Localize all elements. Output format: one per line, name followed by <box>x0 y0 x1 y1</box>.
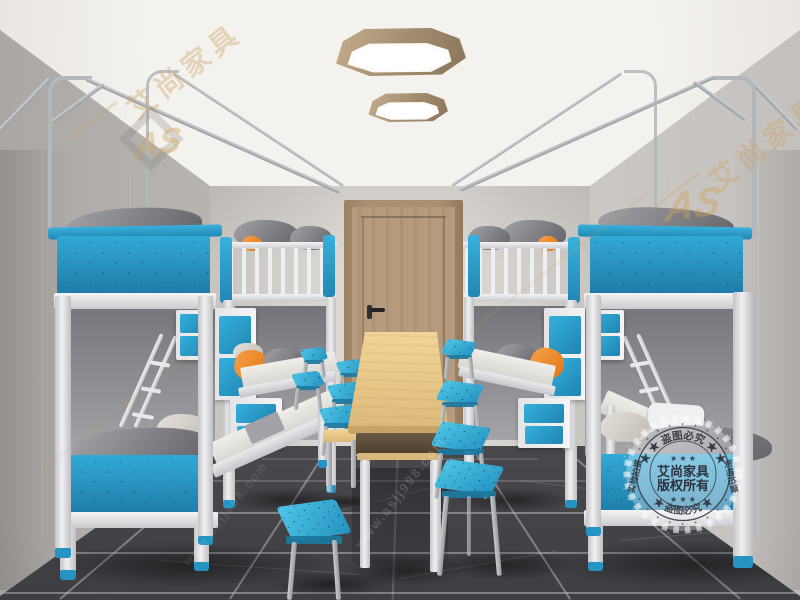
dorm-room-render: 艾尚家具 AS 艾尚家具 AS www.asjj998.com www.asjj… <box>0 0 800 600</box>
stool-side <box>442 402 478 407</box>
stamp-stars-top: ★ ★ ★ <box>670 454 696 463</box>
stool-blue <box>440 462 498 492</box>
stool-blue <box>444 340 474 356</box>
stool-top <box>276 499 352 541</box>
bed-post <box>198 296 213 538</box>
upper-end-panel-blue <box>590 236 743 296</box>
upper-frame-rail <box>584 293 746 309</box>
upper-guardrail-bottom <box>227 294 337 301</box>
upper-frame-rail <box>54 293 216 309</box>
lamp-light-face <box>374 102 440 121</box>
upper-end-panel-blue <box>57 236 210 296</box>
bed-foot-cap <box>194 562 209 571</box>
bench-leg <box>327 442 332 492</box>
stamp-center-line1: 艾尚家具 <box>657 464 709 479</box>
upper-guardrail-slats <box>229 248 335 295</box>
post-blue-cap <box>468 235 480 297</box>
door-handle <box>370 308 385 312</box>
post-blue-cap <box>220 237 232 303</box>
bed-foot-cap <box>586 527 601 536</box>
door-groove-top <box>361 216 446 218</box>
bed-foot-cap <box>60 570 76 580</box>
bed-post <box>55 296 71 550</box>
shadow-under-stools-right <box>425 548 585 582</box>
table-leg <box>360 460 370 568</box>
lamp-light-face <box>345 42 452 73</box>
lower-end-panel-blue <box>62 455 212 517</box>
floor-grout-line <box>0 592 800 594</box>
stool-leg <box>467 496 471 556</box>
copyright-stamp: ★ ★ 盗图必究 ★ ★ ★ 盗图必究 ★ 实物拍摄 实物拍摄 ★ ★ ★ 艾尚… <box>623 414 743 534</box>
stool-blue <box>440 382 480 403</box>
bed-foot-cap <box>565 500 577 508</box>
cabinet-door <box>549 316 581 354</box>
bed-post <box>586 295 601 529</box>
bed-foot-cap <box>588 562 603 571</box>
watermark-logo-monogram: AS <box>663 178 723 232</box>
stool-top <box>433 459 504 495</box>
stool-blue <box>284 502 344 538</box>
stool-side <box>438 449 484 455</box>
storage-step-door <box>525 426 563 444</box>
stool-blue <box>302 348 326 361</box>
bed-foot-cap <box>318 460 327 468</box>
stamp-center-line2: 版权所有 <box>657 478 709 493</box>
post-blue-cap <box>323 235 335 297</box>
upper-guardrail-slats <box>465 248 571 295</box>
stamp-stars-bottom: ★ ★ ★ <box>670 495 696 504</box>
shadow-under-stool-near <box>266 570 396 598</box>
bed-foot-cap <box>733 556 753 568</box>
stool-blue <box>294 372 322 387</box>
bed-foot-cap <box>55 548 71 558</box>
storage-step-door <box>524 404 564 423</box>
